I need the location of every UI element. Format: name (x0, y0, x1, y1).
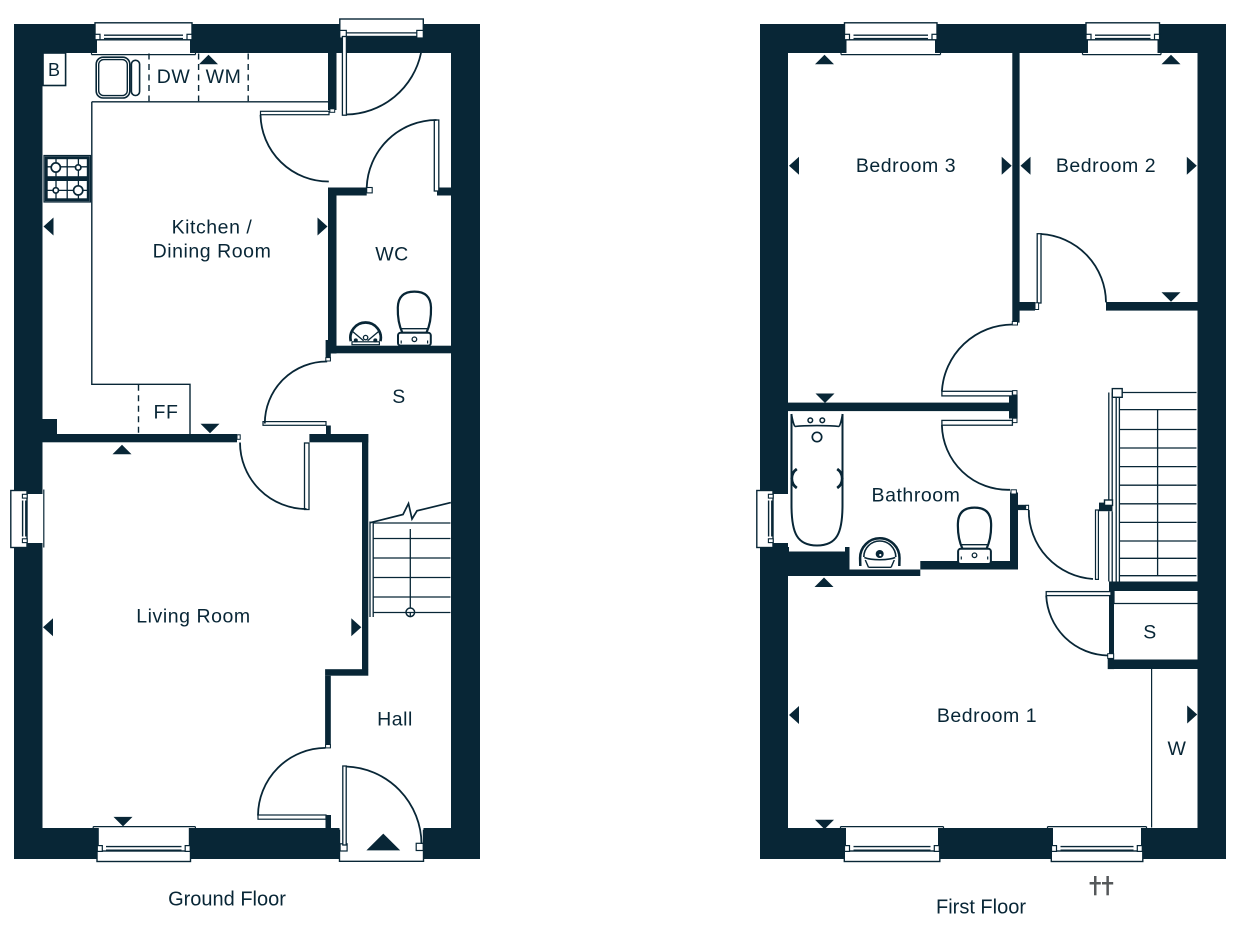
svg-text:First Floor: First Floor (936, 897, 1026, 919)
svg-text:DW: DW (157, 66, 191, 88)
svg-text:Ground Floor: Ground Floor (168, 889, 286, 911)
svg-text:W: W (1168, 738, 1187, 760)
svg-text:Bedroom 3: Bedroom 3 (856, 155, 956, 177)
svg-text:B: B (48, 60, 60, 80)
svg-text:Hall: Hall (377, 709, 413, 731)
svg-text:Living Room: Living Room (136, 606, 250, 628)
svg-text:Kitchen /: Kitchen / (172, 217, 253, 239)
svg-text:Dining Room: Dining Room (153, 241, 272, 263)
svg-text:FF: FF (154, 402, 179, 424)
svg-text:S: S (392, 386, 406, 408)
svg-text:S: S (1143, 622, 1157, 644)
svg-text:WC: WC (375, 244, 409, 266)
svg-text:WM: WM (206, 66, 242, 88)
svg-text:Bathroom: Bathroom (872, 485, 961, 507)
svg-text:Bedroom 1: Bedroom 1 (937, 705, 1037, 727)
svg-text:Bedroom 2: Bedroom 2 (1056, 155, 1156, 177)
